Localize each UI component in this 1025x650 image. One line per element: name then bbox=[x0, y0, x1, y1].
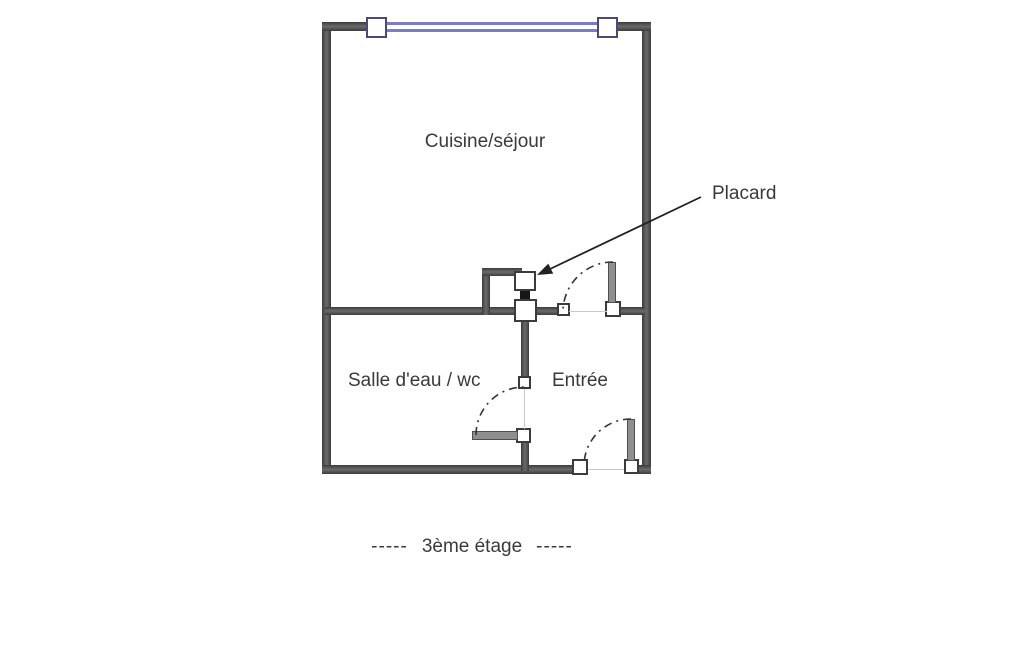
top-door-leaf bbox=[608, 262, 616, 303]
caption-text: 3ème étage bbox=[422, 536, 522, 557]
floorplan-canvas: Cuisine/séjour Placard Salle d'eau / wc … bbox=[0, 0, 1025, 650]
placard-door-box bbox=[514, 271, 536, 291]
bath-door-leaf bbox=[472, 431, 518, 440]
wall-right bbox=[642, 22, 651, 474]
wall-top-right-segment bbox=[615, 22, 651, 31]
bath-door-hinge-post bbox=[516, 428, 531, 443]
placard-arrowhead bbox=[537, 264, 553, 275]
wall-divider-upper bbox=[521, 315, 529, 379]
entry-door-hinge-post bbox=[624, 459, 639, 474]
entry-door-leaf bbox=[627, 419, 635, 461]
top-door-threshold-line bbox=[569, 311, 607, 312]
entry-door-threshold-line bbox=[588, 469, 624, 470]
window-glass-line-outer bbox=[384, 22, 600, 25]
label-room-main: Cuisine/séjour bbox=[385, 131, 585, 153]
window-post-left bbox=[366, 17, 387, 38]
entry-door-strike-post bbox=[572, 459, 588, 475]
wall-bottom-left-segment bbox=[322, 465, 581, 474]
junction-post-center bbox=[514, 299, 537, 322]
wall-left bbox=[322, 22, 331, 474]
top-door-strike-post bbox=[557, 303, 570, 316]
floor-caption: -----3ème étage----- bbox=[327, 536, 617, 558]
window-glass-line-inner bbox=[384, 29, 600, 32]
wall-divider-lower bbox=[521, 441, 529, 471]
placard-leader-line bbox=[550, 197, 701, 269]
caption-dashes-right: ----- bbox=[536, 536, 573, 557]
label-closet: Placard bbox=[712, 183, 776, 205]
bath-door-strike-post bbox=[518, 376, 531, 389]
top-door-hinge-post bbox=[605, 301, 621, 317]
bath-door-threshold-line bbox=[524, 389, 525, 429]
label-bathroom: Salle d'eau / wc bbox=[348, 370, 480, 392]
entry-door-swing-arc bbox=[584, 419, 631, 464]
wall-interior-horizontal-right bbox=[617, 307, 645, 315]
wall-top-left-segment bbox=[322, 22, 370, 31]
label-entry: Entrée bbox=[552, 370, 608, 392]
window-post-right bbox=[597, 17, 618, 38]
caption-dashes-left: ----- bbox=[371, 536, 408, 557]
